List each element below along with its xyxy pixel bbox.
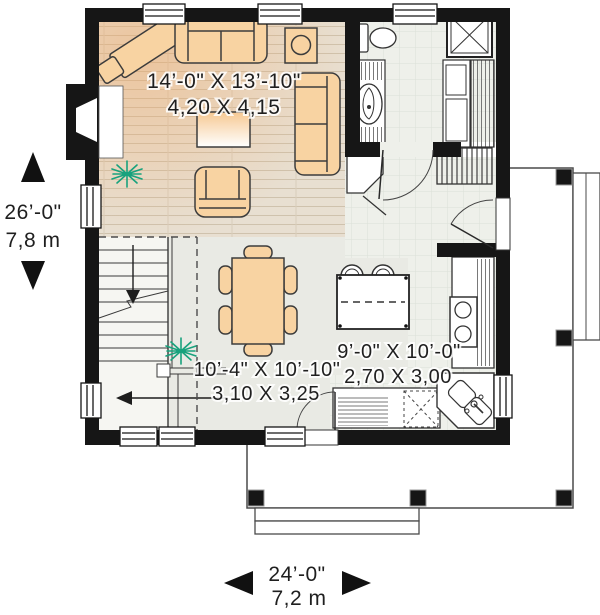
loveseat-icon: [295, 73, 340, 175]
width-imperial: 24’-0": [268, 563, 325, 586]
bathroom-door-opening: [380, 142, 433, 157]
width-dimension: 24’-0" 7,2 m: [224, 563, 371, 610]
island-icon: [337, 265, 409, 329]
dining-chair-icon: [219, 306, 232, 334]
porch-door-opening: [300, 430, 338, 445]
sofa-icon: [175, 17, 267, 63]
porch-steps-icon: [255, 508, 419, 521]
depth-imperial: 26’-0": [4, 201, 61, 224]
dimension-arrow-icon: [224, 571, 253, 595]
dimension-arrow-icon: [21, 261, 45, 290]
linen-shelves-icon: [471, 60, 494, 147]
depth-metric: 7,8 m: [5, 229, 60, 252]
living-room-size-imperial: 14’-0" X 13’-10": [147, 70, 301, 93]
dining-chair-icon: [219, 266, 232, 294]
window-icon: [81, 383, 101, 418]
dining-chair-icon: [244, 343, 272, 356]
armchair-icon: [195, 167, 250, 217]
dining-table-icon: [232, 258, 284, 344]
floor-plan-drawing: 14’-0" X 13’-10" 4,20 X 4,15 10’-4" X 10…: [0, 0, 600, 615]
dimension-arrow-icon: [21, 152, 45, 182]
window-icon: [494, 375, 512, 418]
kitchen-size-metric: 2,70 X 3,00: [344, 366, 452, 388]
window-icon: [81, 185, 101, 228]
bathroom-wall: [345, 8, 360, 155]
floor-plan-page: 14’-0" X 13’-10" 4,20 X 4,15 10’-4" X 10…: [0, 0, 600, 615]
dining-room-size-metric: 3,10 X 3,25: [212, 383, 320, 405]
width-metric: 7,2 m: [271, 587, 326, 610]
dimension-arrow-icon: [342, 571, 371, 595]
kitchen-size-imperial: 9’-0" X 10’-0": [337, 341, 460, 363]
living-room-size-metric: 4,20 X 4,15: [168, 96, 281, 119]
window-icon: [143, 4, 185, 24]
window-icon: [265, 427, 305, 446]
lamp-table-icon: [285, 28, 317, 63]
window-icon: [120, 427, 157, 446]
stove-icon: [450, 297, 477, 347]
window-icon: [393, 4, 437, 24]
dining-chair-icon: [284, 306, 297, 334]
dining-room-size-imperial: 10’-4" X 10’-10": [194, 359, 341, 381]
dining-chair-icon: [284, 266, 297, 294]
side-door-opening: [496, 198, 510, 250]
window-icon: [159, 427, 195, 446]
depth-dimension: 26’-0" 7,8 m: [4, 152, 61, 290]
bath-cabinet-icon: [443, 60, 470, 147]
window-icon: [258, 4, 302, 24]
dining-chair-icon: [244, 246, 272, 259]
